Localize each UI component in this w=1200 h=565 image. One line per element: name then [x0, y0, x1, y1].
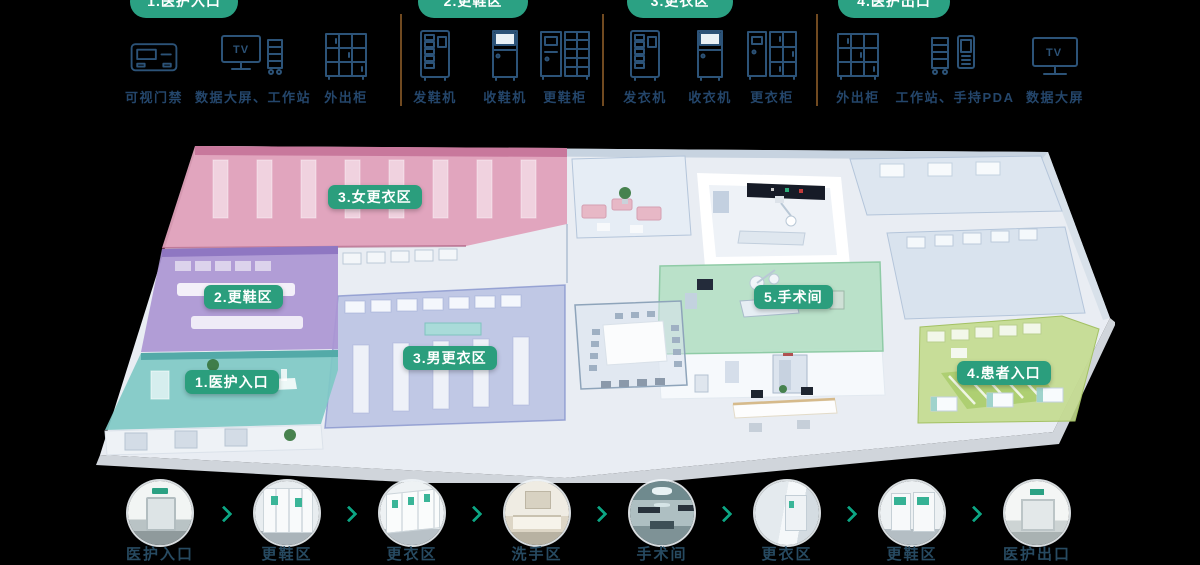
conference-room — [575, 301, 687, 389]
svg-text:TV: TV — [1046, 47, 1062, 59]
waiting-area — [572, 156, 691, 238]
badge-shoe-changing: 2.更鞋区 — [204, 285, 283, 309]
flow-photo-shoe-area — [255, 481, 319, 545]
flow-arrow-icon — [591, 506, 608, 523]
flow-label: 手术间 — [607, 543, 717, 564]
flow-label: 医护入口 — [105, 543, 215, 564]
locker-grid-icon — [320, 28, 372, 82]
equipment-label: 数据大屏 — [1026, 87, 1084, 106]
flow-photo-shoe-area-2 — [880, 481, 944, 545]
clothes-locker-icon — [744, 28, 800, 82]
svg-text:TV: TV — [233, 44, 249, 56]
zone-pill-staff-entrance: 1.医护入口 — [130, 0, 238, 18]
flow-arrow-icon — [216, 506, 233, 523]
equipment-label: 外出柜 — [324, 87, 368, 106]
zone-pill-changing-area: 3.更衣区 — [627, 0, 733, 18]
operating-room-block — [658, 262, 885, 399]
badge-women-changing: 3.女更衣区 — [328, 185, 422, 209]
flow-label: 更衣区 — [357, 543, 467, 564]
flow-photo-staff-exit — [1005, 481, 1069, 545]
screen-workstation-icon: TV — [218, 28, 288, 82]
equipment-label: 更衣柜 — [750, 87, 794, 106]
data-screen-icon: TV — [1027, 28, 1083, 82]
zone-pill-staff-exit: 4.医护出口 — [838, 0, 950, 18]
flow-arrow-icon — [966, 506, 983, 523]
equipment-item: TV 数据大屏 — [990, 28, 1120, 106]
workstation-pda-icon — [926, 28, 984, 82]
flow-arrow-icon — [341, 506, 358, 523]
flow-photo-changing-area-2 — [755, 481, 819, 545]
flow-photo-changing-area — [380, 481, 444, 545]
equipment-label: 外出柜 — [836, 87, 880, 106]
infographic-canvas: 1.医护入口 2.更鞋区 3.更衣区 4.医护出口 可视门禁 TV — [0, 0, 1200, 565]
locker-grid-icon — [832, 28, 884, 82]
badge-staff-entrance: 1.医护入口 — [185, 370, 279, 394]
flow-photo-operating-room — [630, 481, 694, 545]
flow-arrow-icon — [841, 506, 858, 523]
flow-label: 医护出口 — [982, 543, 1092, 564]
flow-label: 更鞋区 — [857, 543, 967, 564]
equipment-label: 可视门禁 — [125, 87, 183, 106]
flow-arrow-icon — [466, 506, 483, 523]
zone-pill-shoe-area: 2.更鞋区 — [418, 0, 528, 18]
badge-men-changing: 3.男更衣区 — [403, 346, 497, 370]
flow-arrow-icon — [716, 506, 733, 523]
control-room — [697, 173, 850, 267]
flow-label: 更衣区 — [732, 543, 842, 564]
flow-label: 更鞋区 — [232, 543, 342, 564]
flow-label: 洗手区 — [482, 543, 592, 564]
flow-photo-scrub-area — [505, 481, 569, 545]
door-access-icon — [126, 28, 182, 82]
flow-photo-staff-entrance — [128, 481, 192, 545]
badge-operating-room: 5.手术间 — [754, 285, 833, 309]
badge-patient-entrance: 4.患者入口 — [957, 361, 1051, 385]
